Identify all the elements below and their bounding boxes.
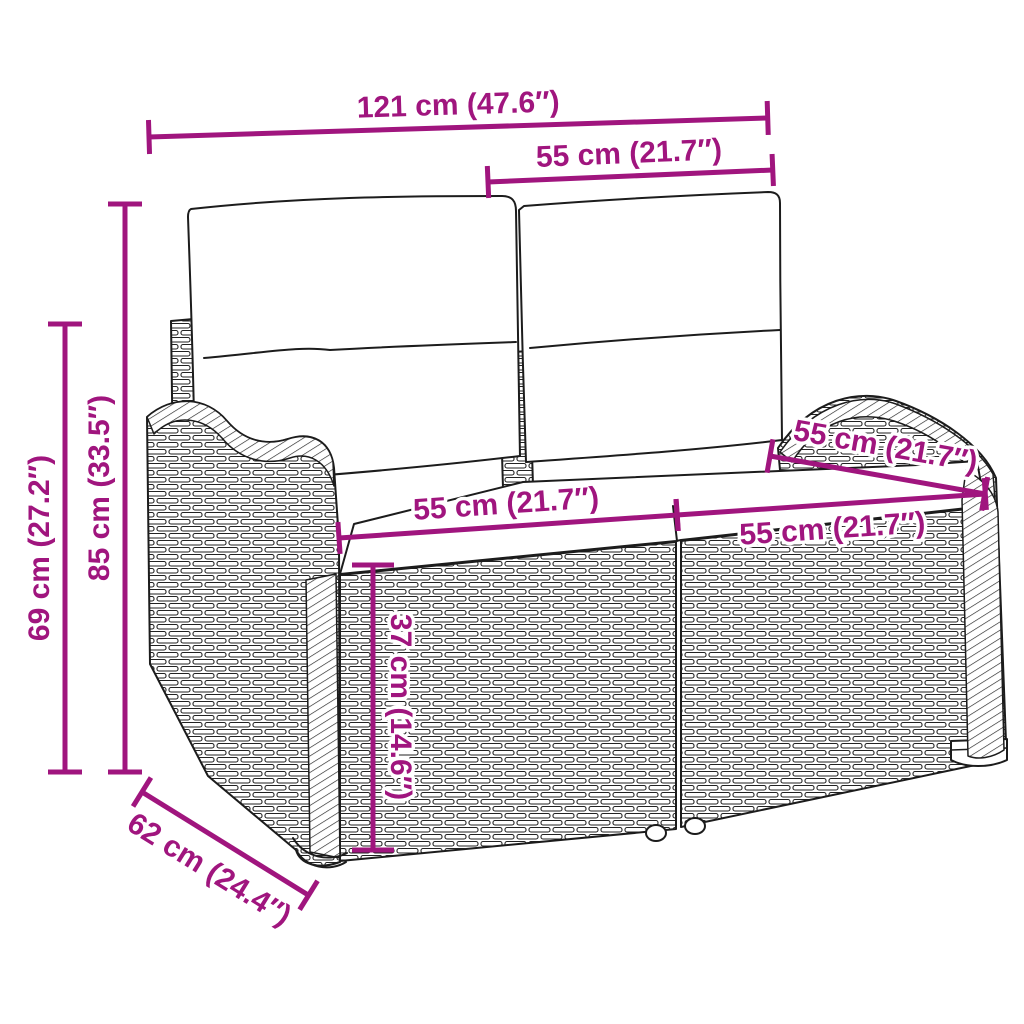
foot-center-left [646, 825, 666, 841]
bench-diagram-canvas: 121 cm (47.6″) 55 cm (21.7″) 85 cm (33.5… [0, 0, 1024, 1024]
dim-total-width-label: 121 cm (47.6″) [356, 85, 560, 124]
back-cushion-right [519, 192, 782, 462]
product-dimension-diagram: 121 cm (47.6″) 55 cm (21.7″) 85 cm (33.5… [0, 0, 1024, 1024]
foot-center-right [685, 818, 705, 834]
right-armrest-outer-column [962, 470, 1004, 758]
dim-backrest-width: 55 cm (21.7″) [486, 131, 773, 198]
left-armrest [147, 401, 347, 867]
dim-armrest-height: 69 cm (27.2″) [23, 324, 82, 772]
dim-seat-height-label: 37 cm (14.6″) [384, 614, 417, 800]
dim-backrest-width-label: 55 cm (21.7″) [535, 133, 722, 174]
left-corner-column [306, 574, 340, 858]
dim-total-height-label: 85 cm (33.5″) [83, 395, 116, 581]
dim-armrest-height-label: 69 cm (27.2″) [23, 455, 56, 641]
front-panel-right [681, 507, 985, 827]
dim-total-height: 85 cm (33.5″) [83, 204, 142, 772]
